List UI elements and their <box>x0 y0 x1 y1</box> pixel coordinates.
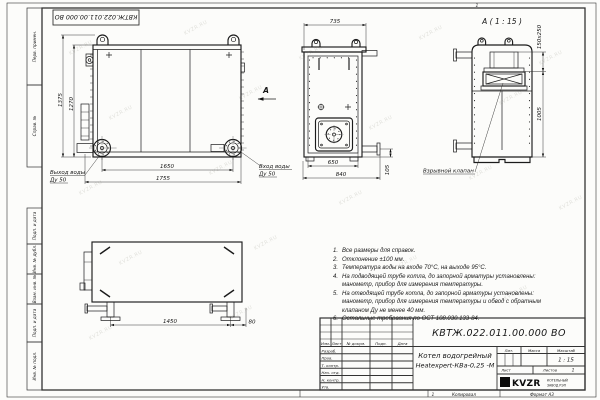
watermark-text: KVZR.RU <box>368 114 393 131</box>
note-number: 4. <box>329 273 338 290</box>
svg-text:Ду 50: Ду 50 <box>258 172 276 178</box>
margin-label-perv-primen: Перв. примен. <box>32 31 37 62</box>
margin-column: Перв. примен. Справ. № Подп. и дата Инв.… <box>27 8 42 390</box>
note-text: На отводящей трубе котла, до запорной ар… <box>342 290 563 316</box>
row-nkontr: Н. контр. <box>322 377 340 382</box>
side-view: 735 105 650 840 <box>302 19 393 180</box>
watermark-text: KVZR.RU <box>88 324 113 341</box>
sheets-label: Листов <box>542 368 558 373</box>
detail-pipes <box>454 49 473 152</box>
note-number: 2. <box>329 256 338 265</box>
row-nachotd: Нач. отд. <box>322 370 340 375</box>
dim-1755: 1755 <box>156 176 170 182</box>
top-stamp: КВТЖ.022.011.00.000 ВО <box>53 10 139 25</box>
dim-650: 650 <box>328 160 339 166</box>
foot <box>350 157 358 161</box>
dim-1270: 1270 <box>69 97 75 111</box>
detail-title: А ( 1 : 15 ) <box>481 17 522 26</box>
watermark-text: KVZR.RU <box>558 194 583 211</box>
lifting-lug <box>478 38 486 45</box>
dim-1450: 1450 <box>163 319 177 325</box>
note-number: 5. <box>329 290 338 316</box>
notes-block: 1.Все размеры для справок. 2.Отклонение … <box>329 247 563 324</box>
dim-80: 80 <box>249 320 256 326</box>
front-dimensions: 1375 1270 1650 1755 <box>58 35 241 184</box>
watermark-text: KVZR.RU <box>338 189 363 206</box>
downcomer-pipe <box>81 104 89 140</box>
explosion-valve <box>481 52 527 90</box>
designation: КВТЖ.022.011.00.000 ВО <box>432 328 566 339</box>
front-view: 1375 1270 1650 1755 Выход воды Ду 50 Вхо… <box>49 35 292 184</box>
inlet-nozzle <box>211 136 247 160</box>
foot <box>306 157 314 161</box>
margin-label-inv-podl: Инв. № подл. <box>32 352 37 381</box>
watermark-text: KVZR.RU <box>253 234 278 251</box>
dim-1650: 1650 <box>160 164 174 170</box>
burner-door <box>316 118 353 151</box>
mount-cross <box>345 104 351 110</box>
company-logo: KVZR КОТЕЛЬНЫЙ ЗАВОД РЭП <box>500 377 569 389</box>
note-text: Остальные требования по ОСТ 108.030.133-… <box>342 315 563 324</box>
sheets-value: 1 <box>572 368 575 374</box>
base-skirt <box>474 157 530 163</box>
margin-label-vzam-inv: Взам. инв. № <box>32 274 37 303</box>
margin-label-sprav-no: Справ. № <box>32 115 37 136</box>
top-stamp-text: КВТЖ.022.011.00.000 ВО <box>55 13 138 20</box>
upper-bracket <box>86 54 93 66</box>
row-razrab: Разраб. <box>322 348 337 353</box>
title-block: КВТЖ.022.011.00.000 ВО Изм. Лист № докум… <box>320 318 585 390</box>
margin-label-podp-data-1: Подп. и дата <box>32 211 37 240</box>
col-doc: № докум. <box>346 341 366 346</box>
note-text: Все размеры для справок. <box>342 247 563 256</box>
scale-label: Масштаб <box>557 348 576 353</box>
watermark-text: KVZR.RU <box>118 249 143 266</box>
note-text: Температура воды на входе 70°С, на выход… <box>342 264 563 273</box>
upper-flange <box>86 56 93 63</box>
margin-label-podp-data-2: Подп. и дата <box>32 308 37 337</box>
lifting-lug <box>97 35 108 45</box>
watermark-text: KVZR.RU <box>183 19 208 36</box>
sheet-label: Лист <box>500 368 511 373</box>
svg-text:Взрывной клапан: Взрывной клапан <box>423 169 474 175</box>
slots <box>319 58 349 70</box>
outlet-nozzle <box>77 136 117 160</box>
note-item: 1.Все размеры для справок. <box>329 247 563 256</box>
zone-marker-bottom: 1 <box>432 392 435 397</box>
company-line1: КОТЕЛЬНЫЙ <box>547 378 569 383</box>
valve-label: Взрывной клапан <box>423 83 503 175</box>
lifting-lug <box>228 35 239 45</box>
logo-text: KVZR <box>512 379 541 389</box>
zone-marker-top: 1 <box>476 3 479 8</box>
note-item: 2.Отклонение ±100 мм. <box>329 256 563 265</box>
plan-view: 1450 80 <box>80 242 256 327</box>
margin-label-inv-dubl: Инв. № дубл. <box>32 245 37 274</box>
note-number: 3. <box>329 264 338 273</box>
svg-text:Выход воды: Выход воды <box>50 170 86 176</box>
svg-text:Вход воды: Вход воды <box>259 164 290 170</box>
note-item: 6.Остальные требования по ОСТ 108.030.13… <box>329 315 563 324</box>
row-utv: Утв. <box>322 385 330 390</box>
note-number: 1. <box>329 247 338 256</box>
logo-mark-icon <box>500 377 510 387</box>
dim-150x250: 150x250 <box>537 24 543 49</box>
mount-cross <box>106 52 232 58</box>
row-tkontr: Т. контр. <box>322 363 340 368</box>
watermark-text: KVZR.RU <box>208 159 233 176</box>
legs <box>85 302 240 321</box>
massa-label: Масса <box>528 348 541 353</box>
dim-840: 840 <box>336 172 347 178</box>
drawing-canvas: KVZR.RU KVZR.RU KVZR.RU KVZR.RU KVZR.RU … <box>0 0 600 400</box>
col-data: Дата <box>397 341 409 346</box>
watermark-text: KVZR.RU <box>108 104 133 121</box>
note-item: 5.На отводящей трубе котла, до запорной … <box>329 290 563 316</box>
watermark-text: KVZR.RU <box>418 24 443 41</box>
dim-105: 105 <box>385 164 391 175</box>
left-channel <box>80 252 92 290</box>
copied-label: Копировал <box>452 392 476 397</box>
lit-label: Лит. <box>504 348 514 353</box>
inlet-label: Вход воды Ду 50 <box>241 152 292 178</box>
note-text: Отклонение ±100 мм. <box>342 256 563 265</box>
company-line2: ЗАВОД РЭП <box>547 384 567 388</box>
view-arrow-label: А <box>262 86 269 95</box>
dim-1375: 1375 <box>58 93 64 107</box>
col-list: Лист <box>331 341 342 346</box>
format-label: Формат А3 <box>530 392 554 397</box>
drain-pipe <box>362 143 380 155</box>
outlet-label: Выход воды Ду 50 <box>49 155 100 184</box>
dim-735: 735 <box>330 19 341 25</box>
product-name-line1: Котел водогрейный <box>418 352 492 360</box>
dim-1005: 1005 <box>537 107 543 121</box>
detail-view-a: А ( 1 : 15 ) 150x250 <box>423 17 546 175</box>
flue-stub <box>362 51 377 57</box>
note-item: 3.Температура воды на входе 70°С, на вых… <box>329 264 563 273</box>
svg-text:Ду 50: Ду 50 <box>49 178 67 184</box>
note-item: 4.На подводящей трубе котла, до запорной… <box>329 273 563 290</box>
col-izm: Изм. <box>321 341 330 346</box>
corner-welds <box>100 247 234 297</box>
col-podp: Подп. <box>375 341 387 346</box>
note-number: 6. <box>329 315 338 324</box>
note-text: На подводящей трубе котла, до запорной а… <box>342 273 563 290</box>
scale-value: 1 : 15 <box>558 358 574 364</box>
product-name-line2: Heatexpert-КВа-0,25 -М <box>416 362 495 370</box>
row-prov: Пров. <box>322 356 333 361</box>
drawing-sheet: KVZR.RU KVZR.RU KVZR.RU KVZR.RU KVZR.RU … <box>0 0 600 400</box>
